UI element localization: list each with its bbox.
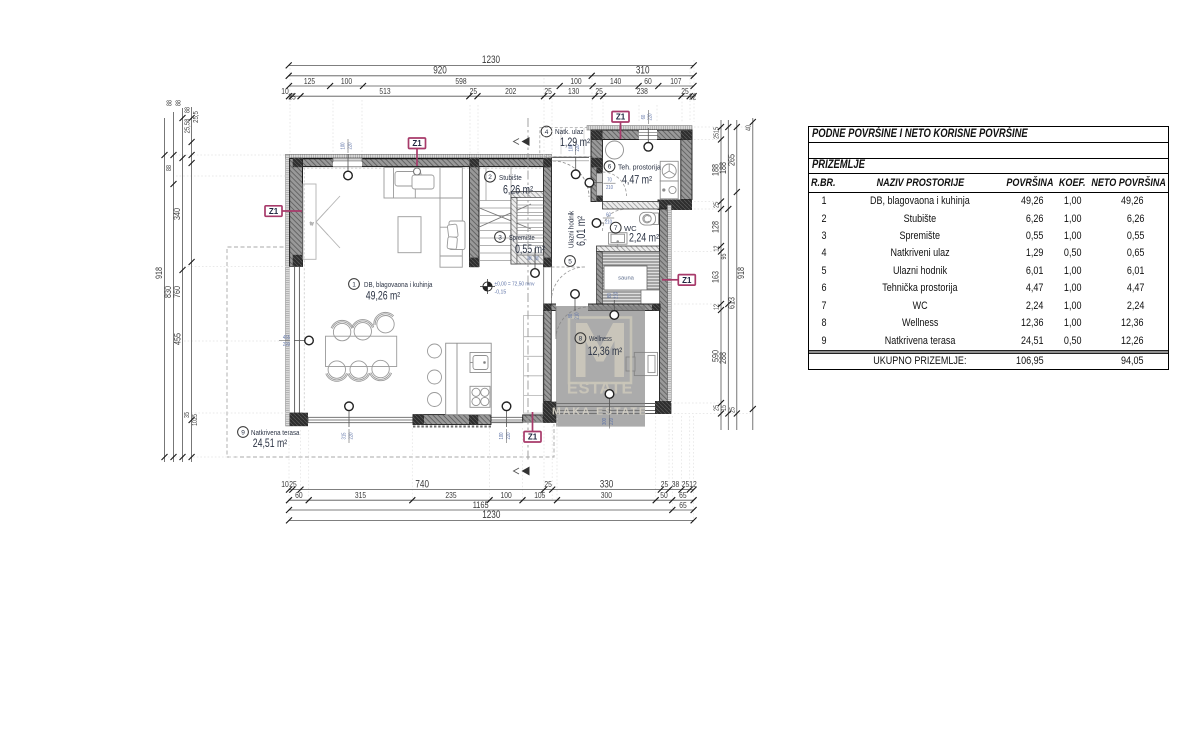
svg-text:25: 25	[470, 86, 478, 96]
svg-text:920: 920	[433, 65, 447, 77]
svg-text:25: 25	[288, 92, 296, 102]
svg-text:288: 288	[718, 352, 729, 364]
svg-text:65: 65	[679, 500, 687, 510]
svg-text:238: 238	[637, 86, 648, 96]
svg-text:35: 35	[184, 412, 191, 418]
svg-text:300: 300	[602, 418, 608, 425]
svg-text:100: 100	[568, 144, 574, 151]
svg-text:210: 210	[606, 185, 613, 191]
svg-text:65: 65	[679, 490, 687, 500]
svg-text:100: 100	[341, 142, 347, 149]
svg-text:Natkrivena terasa: Natkrivena terasa	[251, 428, 300, 437]
svg-text:60: 60	[641, 115, 647, 120]
svg-text:760: 760	[172, 286, 183, 298]
svg-text:340: 340	[172, 208, 183, 220]
svg-text:80: 80	[607, 293, 613, 298]
svg-text:100: 100	[570, 76, 581, 86]
svg-text:128: 128	[711, 221, 722, 233]
svg-text:90: 90	[528, 256, 534, 261]
svg-text:-0,15: -0,15	[495, 290, 507, 296]
svg-text:220: 220	[648, 113, 654, 120]
svg-text:88: 88	[166, 165, 173, 171]
svg-text:4: 4	[545, 129, 549, 136]
svg-text:50: 50	[660, 490, 668, 500]
svg-text:125: 125	[304, 76, 315, 86]
svg-text:8: 8	[579, 336, 583, 343]
svg-text:105: 105	[534, 490, 545, 500]
svg-text:MAKA ESTATE: MAKA ESTATE	[552, 406, 648, 418]
svg-text:25: 25	[661, 479, 669, 489]
svg-text:1025: 1025	[192, 414, 199, 426]
svg-text:455: 455	[283, 335, 290, 341]
svg-text:25: 25	[730, 407, 737, 413]
svg-text:Spremište: Spremište	[509, 233, 535, 242]
svg-text:Z1: Z1	[616, 113, 626, 122]
svg-text:220: 220	[609, 418, 615, 425]
svg-text:Z1: Z1	[412, 139, 422, 148]
svg-text:80: 80	[568, 314, 574, 319]
svg-text:740: 740	[415, 478, 429, 490]
svg-text:25: 25	[714, 405, 721, 411]
svg-text:25,5: 25,5	[193, 111, 200, 123]
svg-text:60: 60	[644, 76, 652, 86]
svg-text:15: 15	[721, 405, 728, 411]
svg-text:220: 220	[283, 342, 290, 348]
svg-text:12: 12	[714, 304, 721, 310]
svg-text:6: 6	[608, 164, 612, 171]
svg-text:100: 100	[501, 490, 512, 500]
svg-text:25: 25	[544, 86, 552, 96]
svg-text:12: 12	[714, 245, 721, 251]
svg-text:12,36 m²: 12,36 m²	[588, 346, 623, 358]
svg-text:88: 88	[176, 100, 183, 106]
svg-text:265: 265	[727, 154, 738, 166]
svg-text:9: 9	[241, 429, 245, 436]
svg-text:6,01 m²: 6,01 m²	[576, 216, 588, 246]
svg-text:300: 300	[601, 490, 612, 500]
svg-text:6,26 m²: 6,26 m²	[503, 185, 533, 197]
svg-text:598: 598	[455, 76, 466, 86]
svg-text:310: 310	[636, 65, 650, 77]
svg-text:25: 25	[595, 86, 603, 96]
svg-text:60: 60	[606, 212, 611, 218]
svg-text:4,47 m²: 4,47 m²	[622, 174, 652, 186]
svg-text:235: 235	[445, 490, 456, 500]
svg-text:513: 513	[379, 86, 390, 96]
svg-text:918: 918	[154, 267, 165, 279]
svg-text:210: 210	[605, 220, 612, 226]
svg-text:330: 330	[600, 478, 614, 490]
svg-text:613: 613	[727, 297, 738, 309]
svg-text:3: 3	[498, 234, 502, 241]
svg-text:Z1: Z1	[682, 276, 692, 285]
svg-text:315: 315	[355, 490, 366, 500]
svg-text:5: 5	[568, 258, 572, 265]
svg-text:2: 2	[488, 174, 492, 181]
svg-text:140: 140	[610, 76, 621, 86]
svg-text:Teh. prostorija: Teh. prostorija	[618, 163, 661, 172]
svg-text:DB, blagovaona i kuhinja: DB, blagovaona i kuhinja	[364, 280, 433, 289]
svg-text:70: 70	[607, 177, 612, 183]
svg-text:±0,00 = 72,50 mnv: ±0,00 = 72,50 mnv	[495, 282, 535, 288]
svg-text:95: 95	[721, 253, 728, 259]
svg-text:88: 88	[167, 100, 174, 106]
svg-text:Wellness: Wellness	[589, 334, 612, 343]
svg-text:Z1: Z1	[269, 207, 279, 216]
svg-text:10: 10	[281, 479, 289, 489]
svg-text:25: 25	[714, 202, 721, 208]
svg-text:25: 25	[544, 479, 552, 489]
svg-text:25: 25	[289, 479, 297, 489]
svg-text:60: 60	[534, 256, 540, 261]
svg-text:24,51 m²: 24,51 m²	[253, 438, 288, 450]
svg-text:ESTATE: ESTATE	[567, 380, 633, 398]
svg-text:12: 12	[689, 92, 697, 102]
svg-text:40: 40	[746, 125, 753, 131]
svg-text:12: 12	[689, 479, 697, 489]
svg-text:Stubište: Stubište	[499, 173, 522, 182]
svg-text:7: 7	[614, 225, 618, 232]
svg-text:38: 38	[672, 479, 680, 489]
svg-text:130: 130	[568, 86, 579, 96]
svg-text:1230: 1230	[482, 54, 500, 66]
svg-text:Natk. ulaz: Natk. ulaz	[555, 127, 584, 136]
svg-text:315: 315	[342, 432, 348, 439]
svg-text:2515: 2515	[714, 127, 721, 139]
svg-text:100: 100	[341, 76, 352, 86]
svg-text:163: 163	[711, 271, 722, 283]
svg-text:49,26 m²: 49,26 m²	[366, 290, 401, 302]
svg-text:Z1: Z1	[528, 433, 538, 442]
svg-text:2,24 m²: 2,24 m²	[629, 232, 659, 244]
svg-text:sauna: sauna	[618, 276, 635, 282]
svg-text:1230: 1230	[482, 509, 500, 521]
svg-text:100: 100	[499, 432, 505, 439]
svg-text:Ulazni hodnik: Ulazni hodnik	[567, 211, 576, 248]
svg-text:210: 210	[613, 292, 619, 299]
svg-text:455: 455	[173, 333, 184, 345]
svg-text:202: 202	[505, 86, 516, 96]
svg-text:1: 1	[352, 281, 356, 288]
svg-text:25,58: 25,58	[185, 119, 192, 134]
svg-text:60: 60	[295, 490, 303, 500]
svg-text:0,55 m²: 0,55 m²	[515, 244, 545, 256]
svg-text:107: 107	[670, 76, 681, 86]
svg-text:918: 918	[736, 267, 747, 279]
svg-text:210: 210	[575, 312, 581, 319]
svg-text:tv: tv	[310, 221, 314, 226]
svg-text:88: 88	[185, 107, 192, 113]
